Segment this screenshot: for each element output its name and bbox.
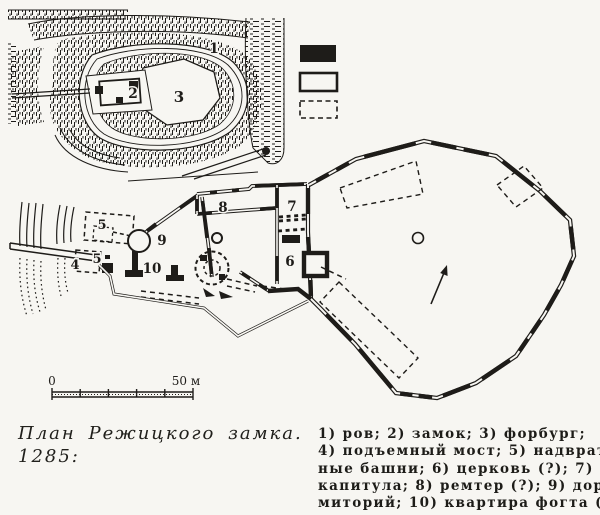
scanned-book-figure: 1 2 3 bbox=[0, 0, 600, 515]
inset-lake bbox=[245, 18, 284, 164]
figure-caption: План Режицкого замка. 1285: bbox=[18, 422, 308, 468]
scale-start-label: 0 bbox=[48, 374, 56, 388]
forburg-wall bbox=[309, 141, 574, 398]
inset-castle-core bbox=[86, 70, 152, 114]
moat-bank-contours bbox=[20, 202, 74, 316]
forburg-well bbox=[413, 233, 424, 244]
inset-topo-map: 1 2 3 bbox=[8, 10, 284, 181]
inset-label-moat: 1 bbox=[209, 41, 219, 57]
label-drawbridge: 4 bbox=[70, 258, 79, 273]
forburg-building-nw bbox=[340, 161, 423, 208]
inset-shore-point bbox=[262, 147, 270, 155]
key-line-5: миторий; 10) квартира фогта (?) bbox=[318, 495, 596, 512]
key-line-3: ные башни; 6) церковь (?); 7) зал bbox=[318, 461, 596, 478]
key-line-2: 4) подъемный мост; 5) надврат- bbox=[318, 443, 596, 460]
key-swatch-outline bbox=[300, 73, 337, 91]
label-gate-tower-lower: 5 bbox=[92, 252, 101, 267]
key-swatch-dashed bbox=[300, 101, 337, 118]
scale-end-label: 50 м bbox=[172, 374, 200, 388]
key-swatch-filled bbox=[300, 45, 336, 62]
drawbridge bbox=[10, 243, 96, 261]
scale-bar: 0 50 м bbox=[48, 374, 200, 400]
figure-key-text: 1) ров; 2) замок; 3) форбург; 4) подъемн… bbox=[318, 426, 596, 512]
main-plan: 4 5 5 9 10 8 7 6 bbox=[10, 141, 574, 398]
caption-title-line: План Режицкого замка. bbox=[18, 422, 308, 445]
label-church: 6 bbox=[285, 254, 294, 270]
label-chapter-hall: 7 bbox=[287, 199, 296, 215]
key-line-1: 1) ров; 2) замок; 3) форбург; bbox=[318, 426, 596, 443]
label-remter: 8 bbox=[218, 200, 227, 216]
map-key-swatches bbox=[300, 45, 337, 118]
key-line-4: капитула; 8) ремтер (?); 9) дор- bbox=[318, 478, 596, 495]
east-annex bbox=[304, 253, 327, 276]
north-arrow bbox=[431, 265, 448, 304]
caption-year-line: 1285: bbox=[18, 445, 308, 468]
label-vogt-quarters: 10 bbox=[143, 261, 162, 277]
inset-label-castle: 2 bbox=[128, 86, 138, 102]
label-gate-tower-upper: 5 bbox=[97, 218, 106, 233]
courtyard-well bbox=[212, 233, 222, 243]
label-dormitory: 9 bbox=[157, 233, 166, 249]
inset-label-forburg: 3 bbox=[174, 88, 184, 106]
